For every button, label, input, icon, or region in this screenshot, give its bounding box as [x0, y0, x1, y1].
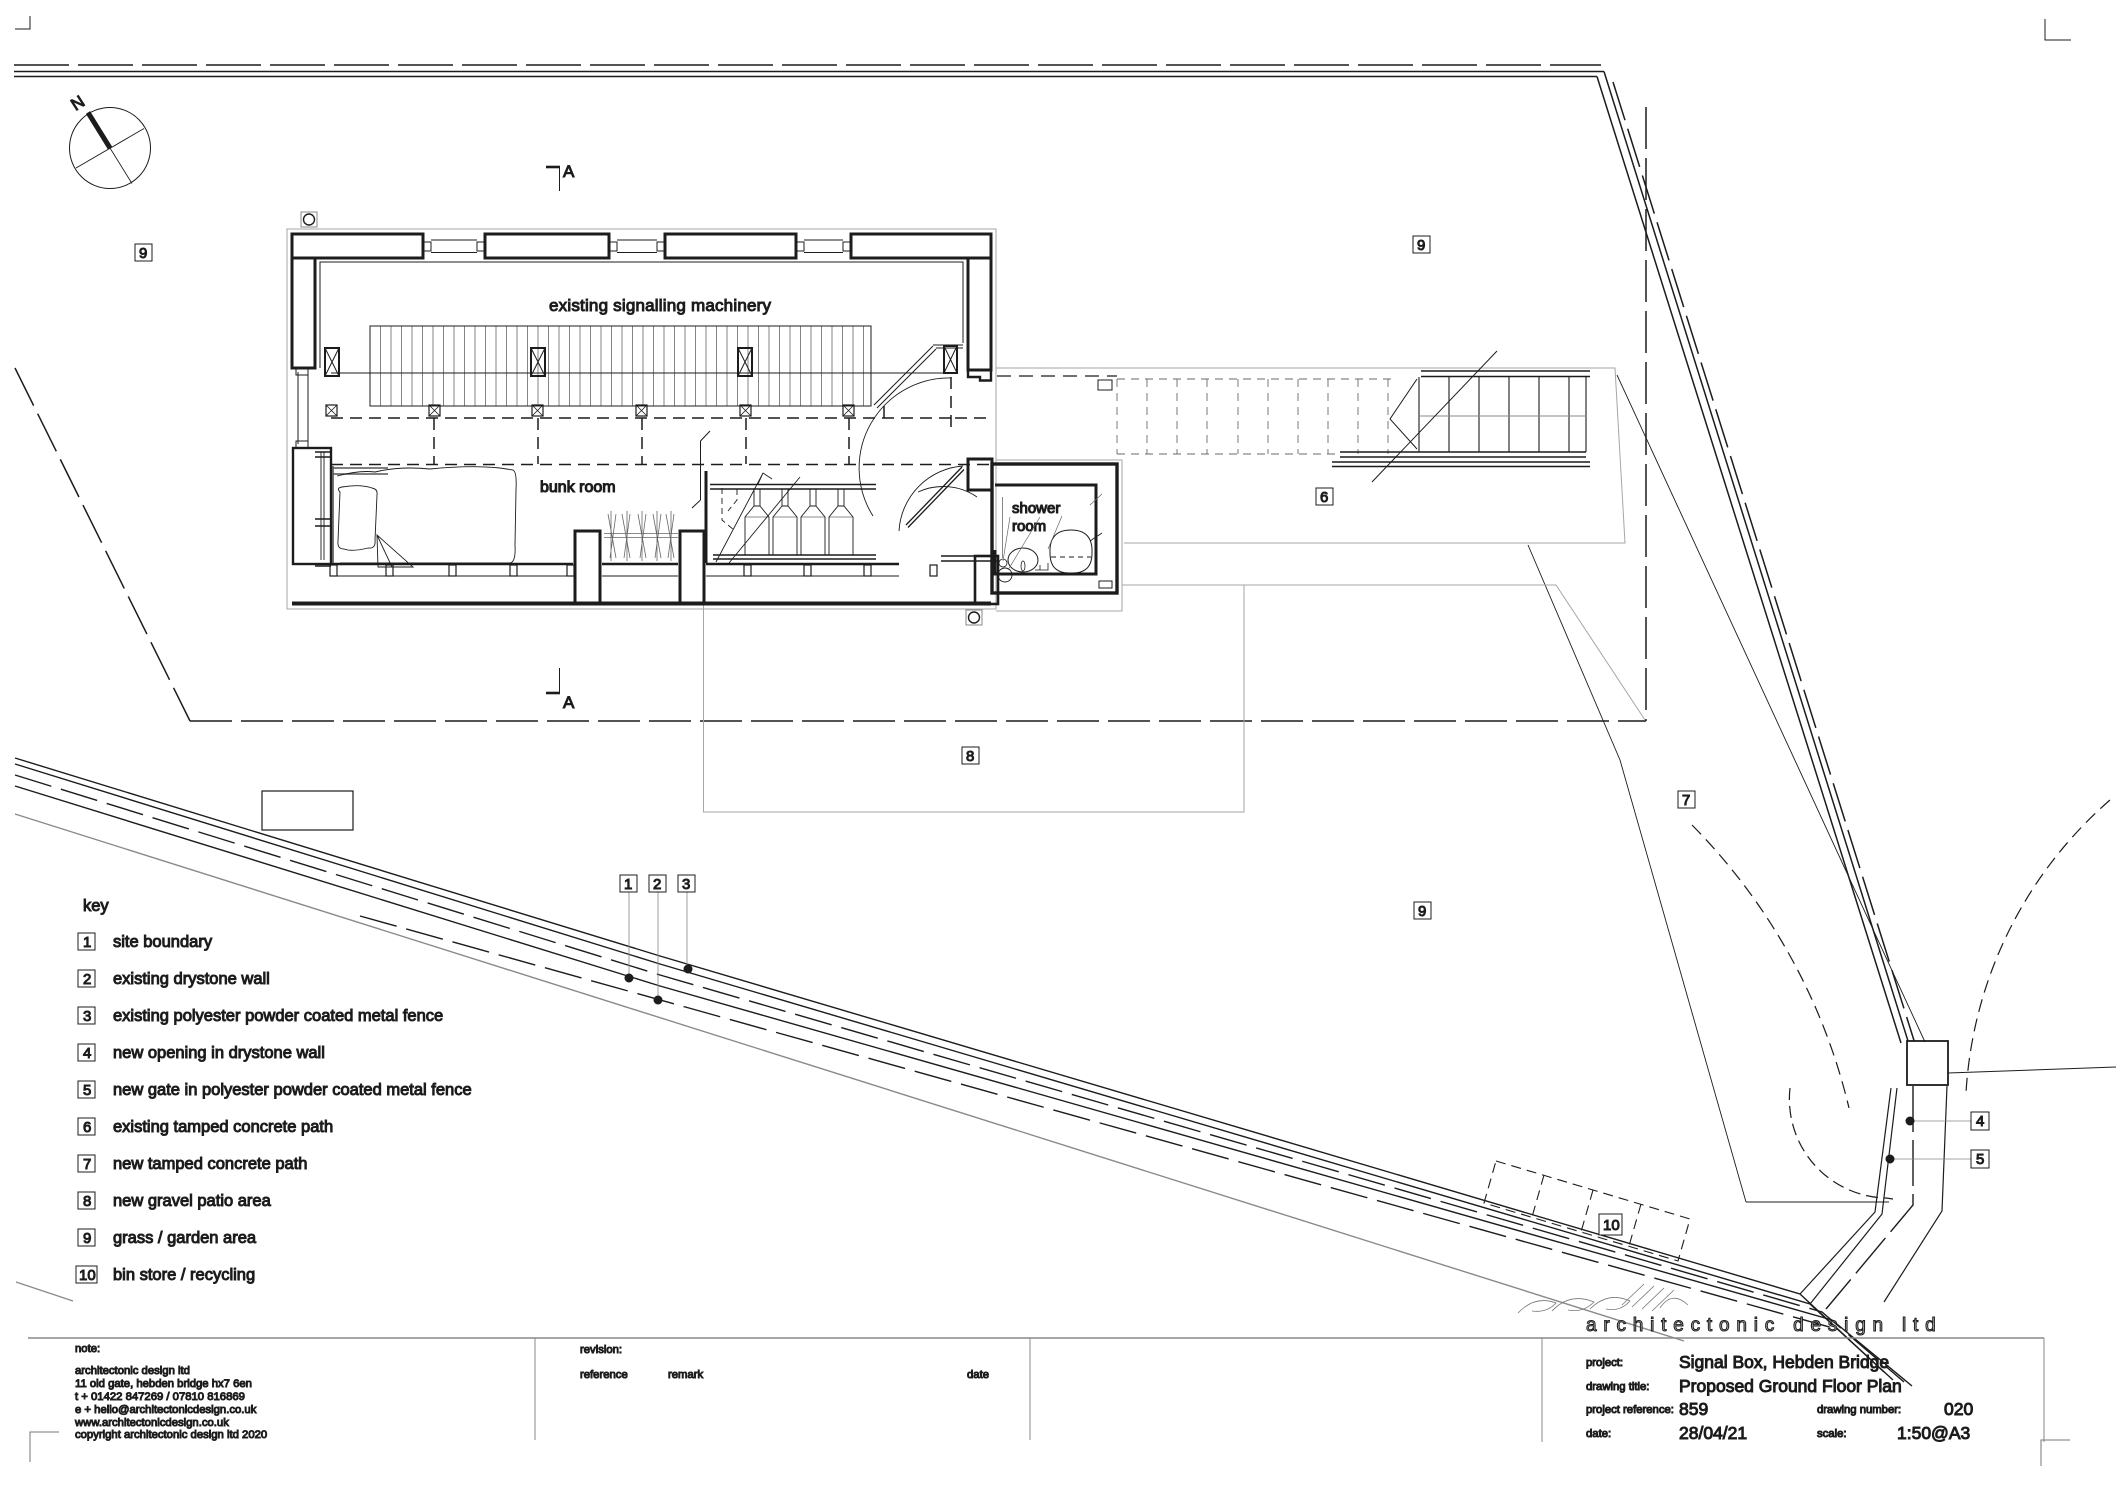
svg-text:9: 9 — [1418, 903, 1426, 920]
svg-text:new opening in drystone wall: new opening in drystone wall — [113, 1044, 325, 1062]
svg-text:t + 01422 847269 / 07810 81686: t + 01422 847269 / 07810 816869 — [75, 1391, 245, 1403]
svg-text:drawing title:: drawing title: — [1586, 1381, 1649, 1393]
svg-text:10: 10 — [1603, 1217, 1620, 1234]
svg-text:date: date — [967, 1369, 989, 1381]
svg-text:4: 4 — [83, 1045, 91, 1062]
svg-text:reference: reference — [580, 1369, 628, 1381]
svg-text:remark: remark — [668, 1369, 703, 1381]
svg-text:7: 7 — [1682, 792, 1690, 809]
svg-text:28/04/21: 28/04/21 — [1679, 1423, 1747, 1443]
svg-text:key: key — [83, 897, 109, 915]
svg-text:3: 3 — [83, 1008, 91, 1025]
svg-text:existing polyester powder coat: existing polyester powder coated metal f… — [113, 1007, 443, 1025]
svg-text:site boundary: site boundary — [113, 933, 213, 951]
svg-text:date:: date: — [1586, 1428, 1611, 1440]
svg-text:9: 9 — [139, 245, 147, 262]
svg-text:9: 9 — [1417, 237, 1425, 254]
svg-text:new gate in polyester powder c: new gate in polyester powder coated meta… — [113, 1081, 472, 1099]
svg-text:9: 9 — [83, 1230, 91, 1247]
svg-text:7: 7 — [83, 1156, 91, 1173]
svg-text:Proposed Ground Floor Plan: Proposed Ground Floor Plan — [1679, 1376, 1902, 1396]
svg-text:3: 3 — [682, 876, 690, 893]
svg-text:11 old gate, hebden bridge hx7: 11 old gate, hebden bridge hx7 6en — [75, 1378, 252, 1390]
svg-text:1: 1 — [624, 876, 632, 893]
svg-text:note:: note: — [75, 1343, 100, 1355]
svg-text:1: 1 — [83, 934, 91, 951]
svg-text:6: 6 — [83, 1119, 91, 1136]
svg-text:5: 5 — [1976, 1151, 1984, 1168]
svg-text:020: 020 — [1944, 1399, 1973, 1419]
svg-text:revision:: revision: — [580, 1344, 622, 1356]
svg-text:859: 859 — [1679, 1399, 1708, 1419]
svg-text:new gravel patio area: new gravel patio area — [113, 1192, 272, 1210]
svg-text:new tamped concrete path: new tamped concrete path — [113, 1155, 307, 1173]
svg-text:4: 4 — [1976, 1113, 1984, 1130]
svg-text:existing signalling machinery: existing signalling machinery — [549, 296, 771, 315]
svg-text:existing tamped concrete path: existing tamped concrete path — [113, 1118, 333, 1136]
svg-text:room: room — [1012, 518, 1046, 535]
svg-text:5: 5 — [83, 1082, 91, 1099]
svg-text:1:50@A3: 1:50@A3 — [1897, 1423, 1970, 1443]
svg-text:architectonic design ltd: architectonic design ltd — [75, 1365, 190, 1377]
svg-text:bunk room: bunk room — [540, 479, 616, 496]
svg-text:scale:: scale: — [1817, 1428, 1847, 1440]
svg-text:10: 10 — [79, 1267, 96, 1284]
svg-text:www.architectonicdesign.co.uk: www.architectonicdesign.co.uk — [74, 1417, 229, 1429]
svg-text:6: 6 — [1320, 489, 1328, 506]
svg-text:8: 8 — [83, 1193, 91, 1210]
svg-text:architectonic design ltd: architectonic design ltd — [1586, 1315, 1942, 1336]
svg-text:grass / garden area: grass / garden area — [113, 1229, 257, 1247]
svg-text:Signal Box, Hebden Bridge: Signal Box, Hebden Bridge — [1679, 1352, 1889, 1372]
svg-text:existing drystone wall: existing drystone wall — [113, 970, 270, 988]
svg-text:bin store / recycling: bin store / recycling — [113, 1266, 255, 1284]
svg-text:drawing number:: drawing number: — [1817, 1404, 1901, 1416]
svg-text:copyright architectonic design: copyright architectonic design ltd 2020 — [75, 1429, 267, 1441]
svg-text:2: 2 — [653, 876, 661, 893]
svg-text:2: 2 — [83, 971, 91, 988]
svg-text:A: A — [563, 162, 575, 181]
svg-text:project reference:: project reference: — [1586, 1404, 1674, 1416]
svg-text:shower: shower — [1012, 500, 1060, 517]
svg-text:A: A — [563, 693, 575, 712]
svg-text:e + hello@architectonicdesign.: e + hello@architectonicdesign.co.uk — [75, 1404, 257, 1416]
svg-text:8: 8 — [966, 748, 974, 765]
svg-text:project:: project: — [1586, 1357, 1623, 1369]
